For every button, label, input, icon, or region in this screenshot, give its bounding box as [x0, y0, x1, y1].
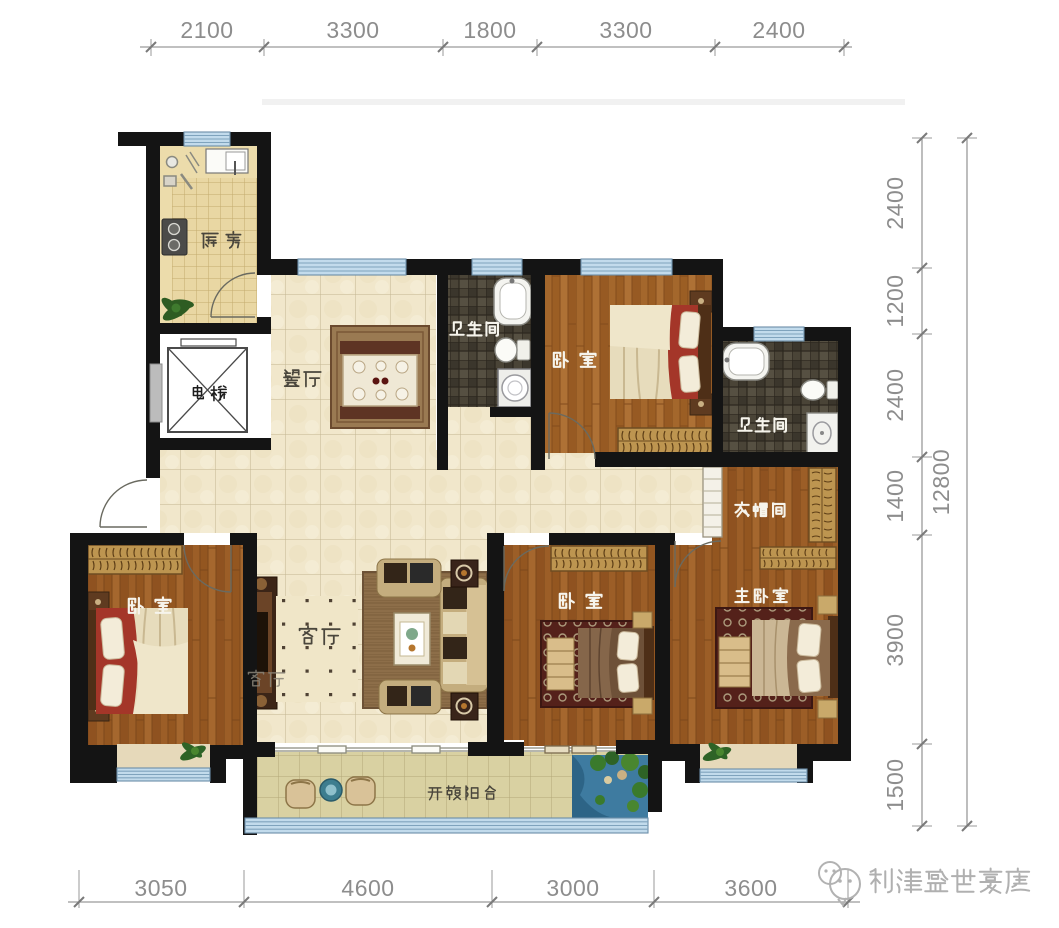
svg-text:3900: 3900 — [882, 613, 908, 666]
svg-text:12800: 12800 — [928, 449, 954, 515]
svg-text:3600: 3600 — [724, 875, 777, 901]
svg-text:1500: 1500 — [882, 758, 908, 811]
svg-text:1400: 1400 — [882, 469, 908, 522]
svg-text:2400: 2400 — [752, 17, 805, 43]
svg-text:3050: 3050 — [134, 875, 187, 901]
svg-text:2400: 2400 — [882, 368, 908, 421]
svg-text:1200: 1200 — [882, 274, 908, 327]
svg-text:2400: 2400 — [882, 176, 908, 229]
svg-text:2100: 2100 — [180, 17, 233, 43]
svg-text:3000: 3000 — [546, 875, 599, 901]
svg-text:3300: 3300 — [599, 17, 652, 43]
svg-text:1800: 1800 — [463, 17, 516, 43]
svg-text:3300: 3300 — [326, 17, 379, 43]
svg-text:4600: 4600 — [341, 875, 394, 901]
